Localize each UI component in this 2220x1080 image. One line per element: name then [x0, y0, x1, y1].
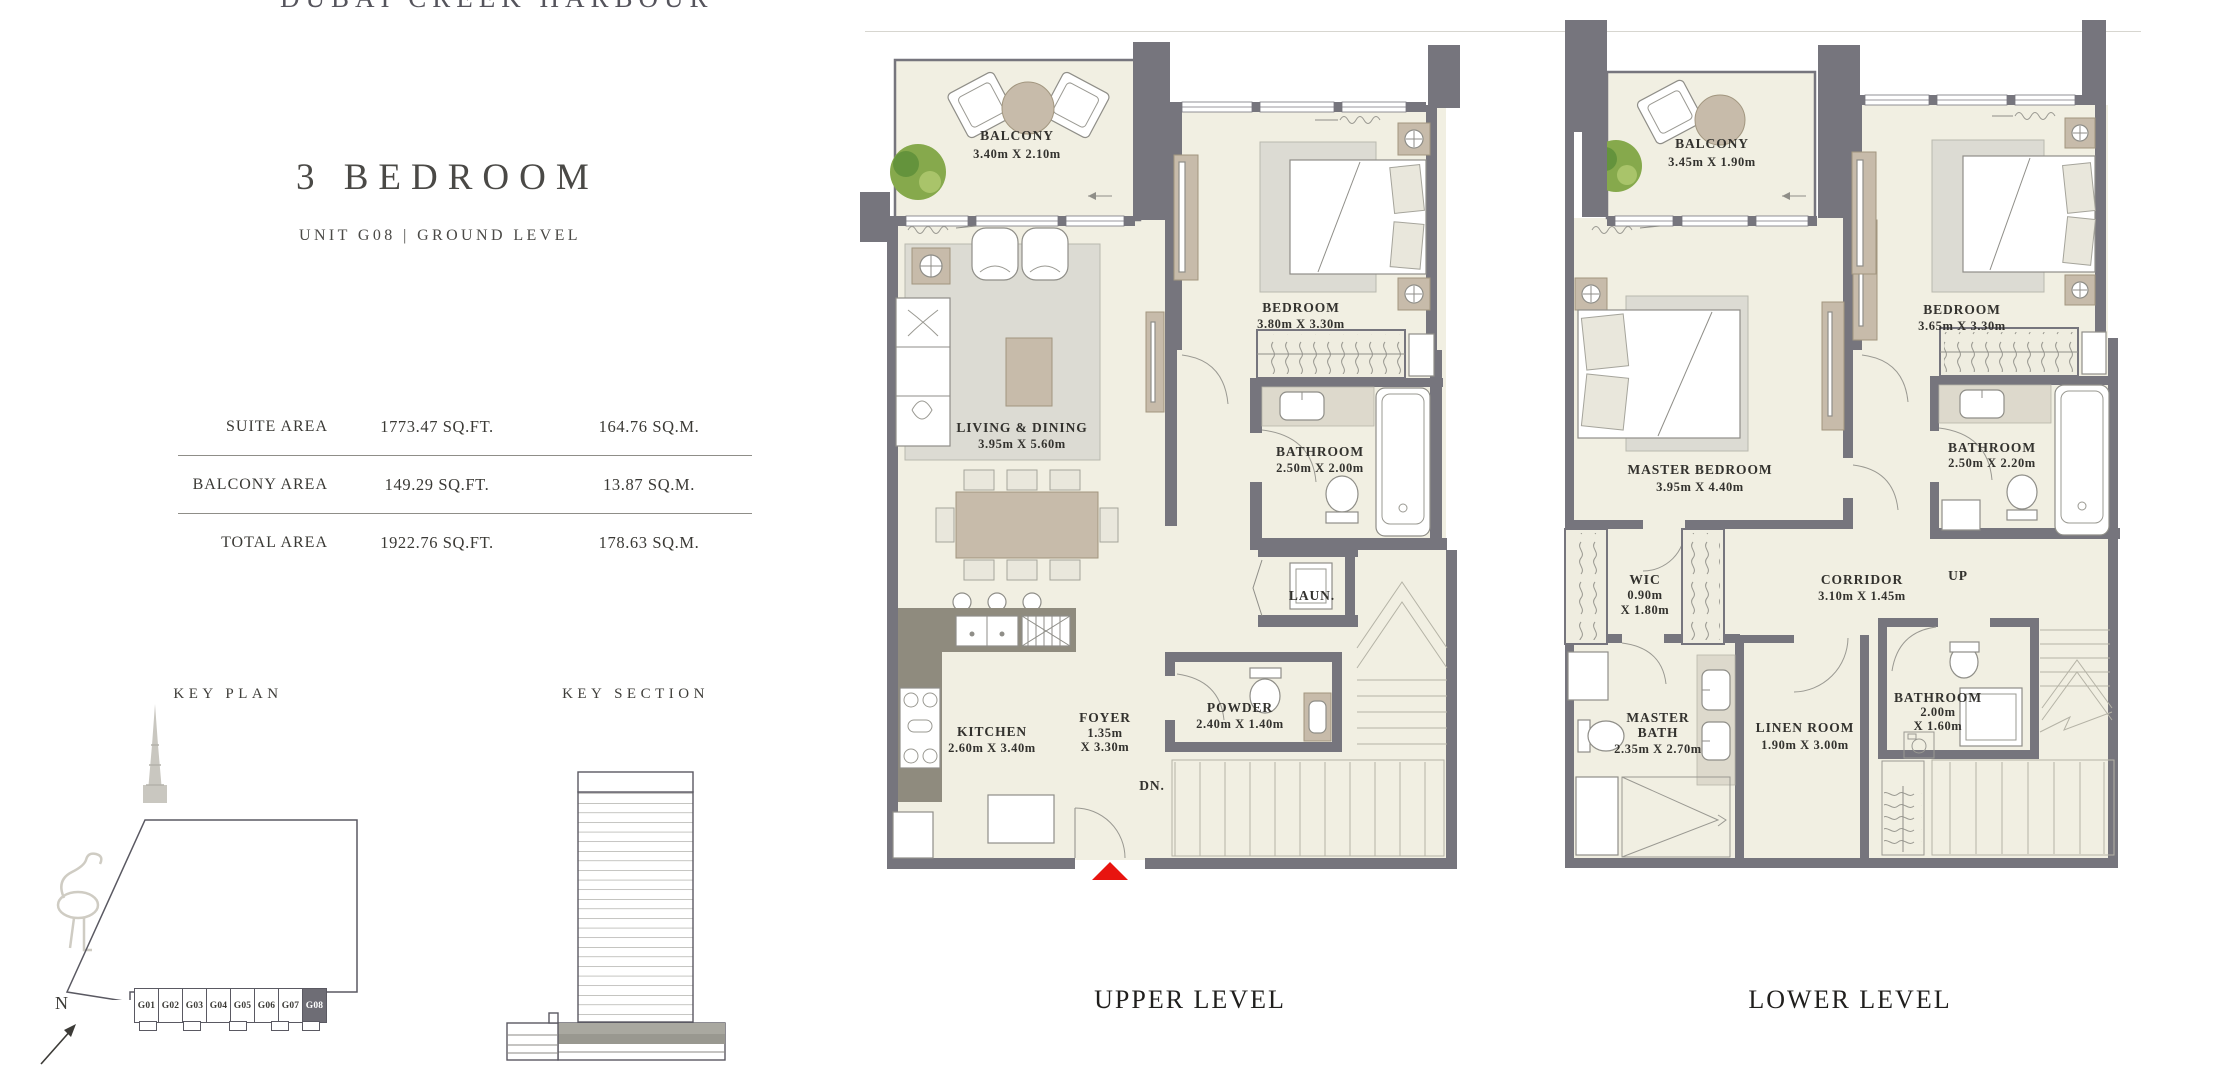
- balcony-notch: [139, 1021, 157, 1031]
- suite-area-sqm: 164.76 SQ.M.: [546, 417, 752, 437]
- unit-subtitle: UNIT G08 | GROUND LEVEL: [299, 227, 581, 245]
- total-area-sqft: 1922.76 SQ.FT.: [328, 533, 546, 553]
- dining-chair: [1050, 470, 1080, 490]
- room-dims-living: 3.95m X 5.60m: [978, 437, 1066, 451]
- unit-cell-g04: G04: [206, 988, 231, 1023]
- room-dims-master-bath: 2.35m X 2.70m: [1614, 742, 1702, 756]
- entrance-marker-icon: [1086, 862, 1134, 880]
- room-label-master-bedroom: MASTER BEDROOM: [1628, 462, 1773, 477]
- room-dims-foyer-1: 1.35m: [1087, 726, 1122, 740]
- upper-level-caption: UPPER LEVEL: [1040, 985, 1340, 1015]
- room-label-wic: WIC: [1629, 572, 1660, 587]
- room-label-bedroom: BEDROOM: [1923, 302, 2001, 317]
- room-dims-wic-1: 0.90m: [1627, 588, 1662, 602]
- armchair: [972, 228, 1018, 280]
- bathtub: [1376, 388, 1430, 536]
- balcony-notch: [229, 1021, 247, 1031]
- room-dims-wic-2: X 1.80m: [1621, 603, 1670, 617]
- tree-icon: [890, 144, 946, 200]
- highlighted-ground-level: [558, 1023, 725, 1034]
- lower-level-caption: LOWER LEVEL: [1700, 985, 2000, 1015]
- pillow: [2063, 163, 2096, 214]
- closet-cell: [1576, 777, 1618, 855]
- upper-level-floorplan: BALCONY 3.40m X 2.10m LIVING & DINING 3.…: [860, 20, 1470, 880]
- toilet: [1326, 476, 1358, 512]
- room-label-living: LIVING & DINING: [956, 420, 1087, 435]
- room-label-foyer: FOYER: [1079, 710, 1131, 725]
- dining-chair: [964, 560, 994, 580]
- balcony-area-sqft: 149.29 SQ.FT.: [328, 475, 546, 495]
- pillow: [1390, 222, 1424, 269]
- unit-cell-g03: G03: [182, 988, 207, 1023]
- total-area-sqm: 178.63 SQ.M.: [546, 533, 752, 553]
- kitchen-island: [988, 795, 1054, 843]
- balcony-area-label: BALCONY AREA: [178, 476, 328, 494]
- room-label-bedroom: BEDROOM: [1262, 300, 1340, 315]
- tv-console: [1822, 302, 1844, 430]
- room-dims-bedroom: 3.65m X 3.30m: [1918, 319, 2006, 333]
- dining-chair: [936, 508, 954, 542]
- closet-cell: [1568, 652, 1608, 700]
- table-row: BALCONY AREA 149.29 SQ.FT. 13.87 SQ.M.: [178, 456, 752, 514]
- room-label-laundry: LAUN.: [1289, 588, 1335, 603]
- balcony-table: [1002, 82, 1054, 134]
- suite-area-label: SUITE AREA: [178, 418, 328, 436]
- room-dims-foyer-2: X 3.30m: [1081, 740, 1130, 754]
- brand-logo: DUBAI CREEK HARBOUR: [280, 0, 635, 14]
- dining-chair: [1007, 470, 1037, 490]
- room-dims-bathroom2-2: X 1.60m: [1914, 719, 1963, 733]
- wardrobe: [1174, 155, 1198, 280]
- room-label-balcony: BALCONY: [1675, 136, 1749, 151]
- total-area-label: TOTAL AREA: [178, 534, 328, 552]
- closet-cell: [1409, 334, 1434, 376]
- balcony-notch: [183, 1021, 201, 1031]
- page-title: 3 BEDROOM: [296, 156, 599, 199]
- dining-chair: [1100, 508, 1118, 542]
- room-dims-balcony: 3.40m X 2.10m: [973, 147, 1061, 161]
- toilet: [2007, 475, 2037, 509]
- room-dims-bedroom: 3.80m X 3.30m: [1257, 317, 1345, 331]
- room-dims-powder: 2.40m X 1.40m: [1196, 717, 1284, 731]
- lower-level-floorplan: BALCONY 3.45m X 1.90m MASTER BEDROOM 3.9…: [1560, 20, 2135, 872]
- dining-table: [956, 492, 1098, 558]
- wardrobe: [1852, 152, 1876, 274]
- balcony-notch: [302, 1021, 320, 1031]
- room-dims-kitchen: 2.60m X 3.40m: [948, 741, 1036, 755]
- dining-chair: [1007, 560, 1037, 580]
- tower-section: [578, 772, 693, 1022]
- pillow: [2063, 217, 2096, 266]
- stove: [900, 688, 940, 768]
- room-dims-bathroom: 2.50m X 2.20m: [1948, 456, 2036, 470]
- room-label-bathroom2: BATHROOM: [1894, 690, 1982, 705]
- site-boundary: [67, 820, 357, 1000]
- dining-chair: [964, 470, 994, 490]
- key-plan-units: G01 G02 G03 G04 G05 G06 G07 G08: [135, 988, 327, 1021]
- room-dims-bathroom2-1: 2.00m: [1920, 705, 1955, 719]
- suite-area-sqft: 1773.47 SQ.FT.: [328, 417, 546, 437]
- bathtub: [2055, 385, 2109, 535]
- table-row: TOTAL AREA 1922.76 SQ.FT. 178.63 SQ.M.: [178, 514, 752, 571]
- pillow: [1581, 314, 1628, 370]
- unit-cell-g08-highlighted: G08: [302, 988, 327, 1023]
- balcony-area-sqm: 13.87 SQ.M.: [546, 475, 752, 495]
- unit-cell-g05: G05: [230, 988, 255, 1023]
- room-label-master-bath-2: BATH: [1638, 725, 1679, 740]
- key-section-title: KEY SECTION: [543, 686, 728, 703]
- coffee-table: [1006, 338, 1052, 406]
- area-table: SUITE AREA 1773.47 SQ.FT. 164.76 SQ.M. B…: [178, 398, 752, 571]
- key-plan-map: [30, 700, 375, 1000]
- closet-cell: [2082, 332, 2106, 374]
- room-dims-balcony: 3.45m X 1.90m: [1668, 155, 1756, 169]
- burj-khalifa-icon: [143, 704, 167, 803]
- stairs-label-up: UP: [1948, 568, 1968, 583]
- unit-cell-g06: G06: [254, 988, 279, 1023]
- north-label: N: [55, 993, 68, 1014]
- balcony-notch: [271, 1021, 289, 1031]
- pillow: [1390, 165, 1425, 214]
- room-label-master-bath-1: MASTER: [1626, 710, 1689, 725]
- closet-cell: [1942, 500, 1980, 530]
- room-dims-linen: 1.90m X 3.00m: [1761, 738, 1849, 752]
- room-label-linen: LINEN ROOM: [1756, 720, 1855, 735]
- room-dims-master-bedroom: 3.95m X 4.40m: [1656, 480, 1744, 494]
- sink: [1309, 701, 1326, 733]
- dining-chair: [1050, 560, 1080, 580]
- stairs-label-dn: DN.: [1139, 778, 1165, 793]
- room-label-balcony: BALCONY: [980, 128, 1054, 143]
- room-label-powder: POWDER: [1207, 700, 1273, 715]
- sofa: [896, 298, 950, 446]
- key-section-drawing: [505, 755, 740, 1065]
- room-label-bathroom: BATHROOM: [1948, 440, 2036, 455]
- room-dims-bathroom: 2.50m X 2.00m: [1276, 461, 1364, 475]
- room-label-bathroom: BATHROOM: [1276, 444, 1364, 459]
- armchair: [1022, 228, 1068, 280]
- pillow: [1581, 374, 1628, 430]
- unit-cell-g02: G02: [158, 988, 183, 1023]
- north-arrow-icon: [36, 1016, 86, 1071]
- unit-cell-g07: G07: [278, 988, 303, 1023]
- room-label-corridor: CORRIDOR: [1821, 572, 1903, 587]
- table-row: SUITE AREA 1773.47 SQ.FT. 164.76 SQ.M.: [178, 398, 752, 456]
- flamingo-icon: [58, 854, 101, 950]
- room-label-kitchen: KITCHEN: [957, 724, 1027, 739]
- unit-cell-g01: G01: [134, 988, 159, 1023]
- room-dims-corridor: 3.10m X 1.45m: [1818, 589, 1906, 603]
- cabinet: [893, 812, 933, 858]
